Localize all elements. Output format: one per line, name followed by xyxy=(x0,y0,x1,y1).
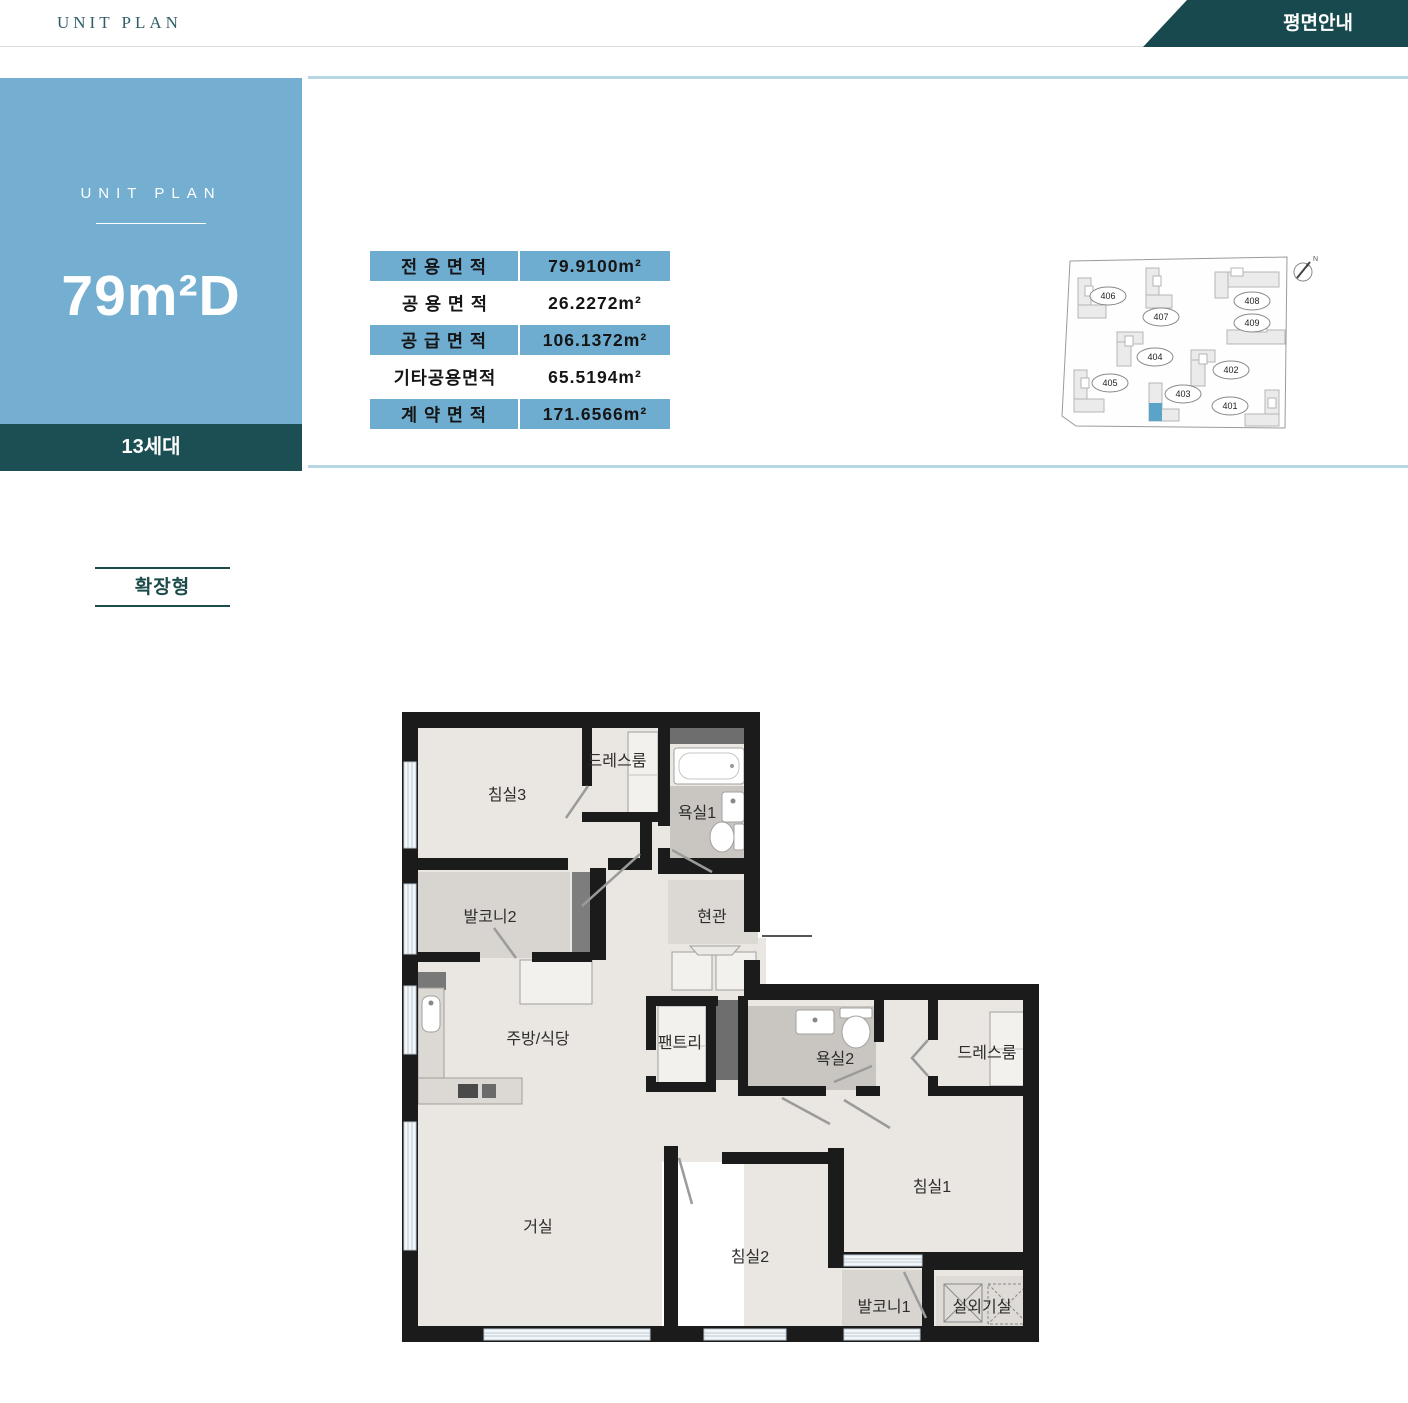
floor-plan: 침실3 드레스룸 욕실1 현관 발코니2 주방/식당 팬트리 욕실2 드레스룸 … xyxy=(392,702,1042,1352)
area-label: 계 약 면 적 xyxy=(370,399,520,429)
area-value: 26.2272m² xyxy=(520,288,670,318)
svg-text:406: 406 xyxy=(1100,291,1115,301)
room-label: 드레스룸 xyxy=(958,1044,1017,1062)
room-label: 발코니2 xyxy=(463,908,516,926)
table-row: 전 용 면 적 79.9100m² xyxy=(370,251,670,281)
entry-sill xyxy=(690,946,740,955)
unit-card-divider xyxy=(96,223,206,224)
room-label: 침실1 xyxy=(913,1178,951,1196)
svg-text:405: 405 xyxy=(1102,378,1117,388)
svg-text:407: 407 xyxy=(1153,312,1168,322)
brand-title: UNIT PLAN xyxy=(57,13,182,33)
room-label: 침실3 xyxy=(488,786,526,804)
compass-icon: N xyxy=(1294,256,1318,281)
area-label: 공 용 면 적 xyxy=(370,288,520,318)
svg-text:409: 409 xyxy=(1244,318,1259,328)
room-label: 팬트리 xyxy=(658,1034,702,1052)
header-bar: UNIT PLAN 평면안내 xyxy=(0,0,1408,47)
room-label: 드레스룸 xyxy=(588,752,647,770)
toilet-icon xyxy=(840,1008,872,1048)
bathtub-icon xyxy=(674,748,744,784)
room-label: 거실 xyxy=(523,1218,552,1236)
area-value: 106.1372m² xyxy=(520,325,670,355)
room-label: 욕실1 xyxy=(678,804,716,822)
room-label: 현관 xyxy=(697,908,727,926)
svg-text:404: 404 xyxy=(1147,352,1162,362)
area-value: 171.6566m² xyxy=(520,399,670,429)
svg-text:N: N xyxy=(1313,256,1318,263)
page-banner: 평면안내 xyxy=(1143,0,1408,47)
unit-plan-page: UNIT PLAN 평면안내 UNIT PLAN 79m²D 13세대 전 용 … xyxy=(0,0,1408,1403)
unit-name: 79m²D xyxy=(0,263,302,329)
sink-icon xyxy=(796,1010,834,1034)
room-label: 침실2 xyxy=(731,1248,769,1266)
room-label: 주방/식당 xyxy=(506,1030,570,1048)
area-table: 전 용 면 적 79.9100m² 공 용 면 적 26.2272m² 공 급 … xyxy=(370,251,670,436)
room-label: 실외기실 xyxy=(953,1298,1012,1316)
unit-card: UNIT PLAN 79m²D xyxy=(0,78,302,424)
table-row: 기타공용면적 65.5194m² xyxy=(370,362,670,392)
svg-text:403: 403 xyxy=(1175,389,1190,399)
svg-text:408: 408 xyxy=(1244,296,1259,306)
households-badge: 13세대 xyxy=(0,424,302,471)
area-label: 기타공용면적 xyxy=(370,362,520,392)
unit-card-eyebrow: UNIT PLAN xyxy=(0,185,302,202)
sink-icon xyxy=(722,792,744,822)
room-label: 욕실2 xyxy=(816,1050,854,1068)
svg-text:402: 402 xyxy=(1223,365,1238,375)
room-label: 발코니1 xyxy=(857,1298,910,1316)
highlighted-unit-marker xyxy=(1149,403,1162,421)
table-row: 공 용 면 적 26.2272m² xyxy=(370,288,670,318)
svg-text:401: 401 xyxy=(1222,401,1237,411)
area-value: 65.5194m² xyxy=(520,362,670,392)
area-label: 전 용 면 적 xyxy=(370,251,520,281)
site-map: 401 402 403 404 405 406 407 408 409 N xyxy=(1055,250,1325,445)
area-value: 79.9100m² xyxy=(520,251,670,281)
plan-type-label: 확장형 xyxy=(95,567,230,607)
dining-block xyxy=(520,960,592,1004)
table-row: 공 급 면 적 106.1372m² xyxy=(370,325,670,355)
wardrobe xyxy=(628,732,658,818)
area-label: 공 급 면 적 xyxy=(370,325,520,355)
table-row: 계 약 면 적 171.6566m² xyxy=(370,399,670,429)
toilet-icon xyxy=(710,822,744,852)
